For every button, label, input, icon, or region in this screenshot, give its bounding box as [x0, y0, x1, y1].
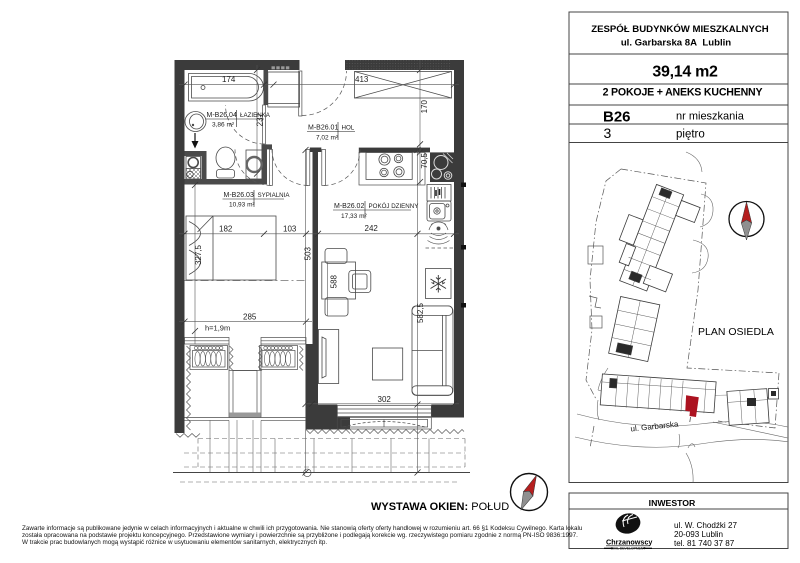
svg-text:582,5: 582,5 [416, 302, 425, 323]
svg-text:39,14 m2: 39,14 m2 [652, 64, 718, 81]
svg-text:M-B26.02: M-B26.02 [334, 203, 364, 210]
svg-text:182: 182 [219, 225, 233, 234]
svg-text:tel. 81 740 37 87: tel. 81 740 37 87 [674, 539, 735, 548]
svg-text:POKÓJ DZIENNY: POKÓJ DZIENNY [369, 203, 419, 210]
svg-text:10,93 m²: 10,93 m² [229, 202, 255, 209]
svg-text:2 POKOJE + ANEKS KUCHENNY: 2 POKOJE + ANEKS KUCHENNY [603, 87, 763, 99]
svg-text:170: 170 [420, 99, 429, 113]
svg-text:nr mieszkania: nr mieszkania [676, 111, 745, 123]
svg-text:70,5: 70,5 [420, 152, 429, 168]
svg-text:ul. W. Chodźki 27: ul. W. Chodźki 27 [674, 521, 737, 530]
svg-text:ul. Garbarska 8A Lublin: ul. Garbarska 8A Lublin [621, 38, 731, 49]
svg-text:PLAN OSIEDLA: PLAN OSIEDLA [698, 326, 774, 338]
svg-text:413: 413 [355, 75, 369, 84]
svg-text:W trakcie prac budowlanych mog: W trakcie prac budowlanych mogą wystąpić… [22, 539, 327, 546]
svg-text:7,02 m²: 7,02 m² [316, 135, 339, 142]
svg-text:HOL: HOL [342, 125, 355, 132]
svg-text:285: 285 [243, 313, 257, 322]
svg-text:SYPIALNIA: SYPIALNIA [258, 192, 291, 199]
svg-text:B26: B26 [603, 109, 631, 126]
svg-text:20-093 Lublin: 20-093 Lublin [674, 530, 723, 539]
svg-text:WYSTAWA OKIEN: POŁUD: WYSTAWA OKIEN: POŁUD [371, 501, 509, 513]
svg-text:327,5: 327,5 [194, 244, 203, 265]
svg-text:M-B26.03: M-B26.03 [224, 192, 254, 199]
svg-text:M-B26.01: M-B26.01 [308, 125, 338, 132]
svg-text:Chrzanowscy: Chrzanowscy [606, 538, 652, 547]
svg-text:CIVIL DEVELOPMENT: CIVIL DEVELOPMENT [611, 547, 646, 551]
svg-text:17,33 m²: 17,33 m² [341, 213, 367, 220]
svg-text:ZESPÓŁ BUDYNKÓW MIESZKALNYCH: ZESPÓŁ BUDYNKÓW MIESZKALNYCH [591, 23, 769, 35]
svg-text:588: 588 [330, 274, 339, 288]
svg-text:h=1,9m: h=1,9m [205, 324, 230, 333]
svg-text:piętro: piętro [676, 129, 705, 141]
svg-text:242: 242 [365, 224, 379, 233]
svg-text:M-B26.04: M-B26.04 [207, 112, 237, 119]
svg-text:została opracowana na podstawi: została opracowana na podstawie projektu… [22, 532, 578, 539]
svg-text:Zawarte informacje są publikow: Zawarte informacje są publikowane jedyni… [22, 525, 583, 532]
svg-text:174: 174 [222, 75, 236, 84]
svg-text:3: 3 [604, 125, 612, 141]
svg-text:302: 302 [378, 395, 392, 404]
svg-text:3,86 m²: 3,86 m² [212, 122, 235, 129]
svg-text:103: 103 [283, 225, 297, 234]
svg-text:ŁAZIENKA: ŁAZIENKA [240, 112, 271, 119]
svg-text:503: 503 [304, 246, 313, 260]
svg-text:INWESTOR: INWESTOR [649, 498, 696, 508]
